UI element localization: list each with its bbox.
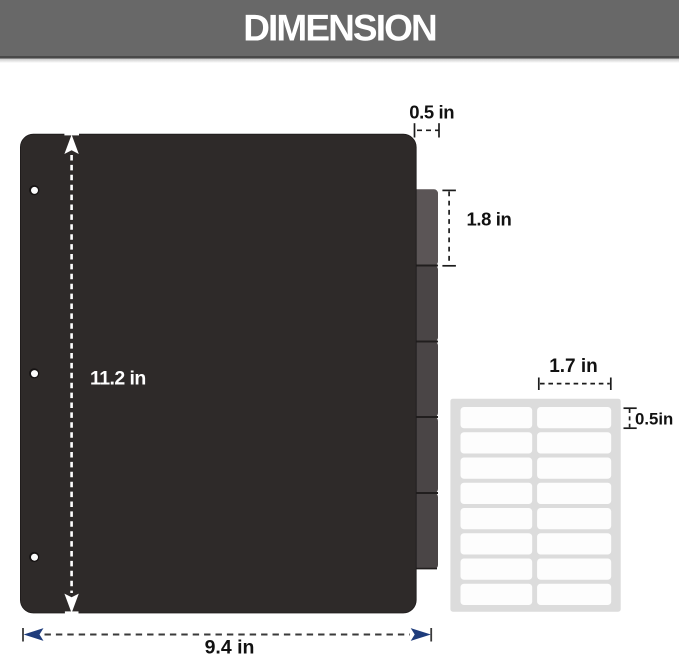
svg-text:1.7 in: 1.7 in: [549, 356, 598, 377]
svg-text:1.8 in: 1.8 in: [467, 209, 512, 230]
svg-text:0.5in: 0.5in: [635, 409, 673, 428]
svg-text:0.5 in: 0.5 in: [409, 102, 454, 123]
svg-text:11.2 in: 11.2 in: [90, 368, 146, 390]
svg-text:9.4 in: 9.4 in: [205, 637, 255, 654]
svg-text:DIMENSION: DIMENSION: [243, 8, 436, 49]
